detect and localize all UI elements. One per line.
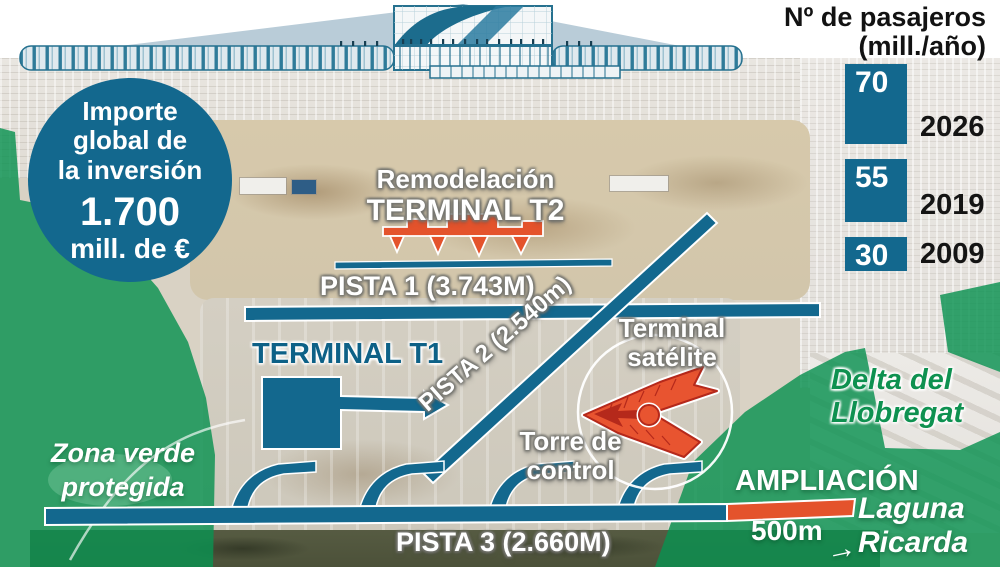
tower-label-line1: Torre de (493, 427, 648, 456)
delta-llobregat-label: Delta del Llobregat (831, 364, 963, 431)
scale-label: 500m (751, 516, 823, 547)
runway-3-bar (45, 504, 727, 525)
green-zone-label: Zona verde protegida (28, 437, 218, 505)
terminal-t2-label: Remodelación TERMINAL T2 (358, 165, 573, 227)
passenger-bar: 55 (845, 159, 907, 222)
tower-label-line2: control (493, 456, 648, 485)
laguna-ricarda-label: Laguna Ricarda (858, 492, 968, 560)
bar-year-label: 2026 (920, 115, 985, 140)
t2-label-line2: TERMINAL T2 (358, 194, 573, 227)
passenger-bar-row: 302009 (845, 237, 997, 271)
runway-3-label: PISTA 3 (2.660M) (396, 528, 611, 558)
passenger-bar-chart: 702026552019302009 (845, 64, 997, 286)
basement-block (430, 66, 620, 78)
green-zone-line2: protegida (28, 471, 218, 505)
terminal-t2-arrow (430, 236, 446, 254)
badge-amount: 1.700 (80, 192, 180, 232)
satellite-hub-dot (639, 405, 659, 425)
terminal-cross-section-illustration (18, 0, 746, 80)
passenger-bar: 70 (845, 64, 907, 144)
taxiway-wave (232, 461, 316, 507)
laguna-line1: Laguna (858, 492, 968, 526)
mezzanine-floor (394, 44, 552, 47)
bar-value-label: 30 (855, 239, 888, 271)
terminal-t2-arrow (390, 236, 404, 252)
delta-line2: Llobregat (831, 397, 963, 430)
satellite-terminal-label: Terminal satélite (602, 314, 742, 371)
terminal-t2-arrow (512, 236, 530, 254)
airport-expansion-infographic: Importe global de la inversión 1.700 mil… (0, 0, 1000, 567)
badge-title-line: la inversión (58, 156, 203, 186)
chart-title-line2: (mill./año) (784, 32, 986, 61)
west-wing-facade (20, 46, 394, 70)
delta-line1: Delta del (831, 364, 963, 397)
chart-title-line1: Nº de pasajeros (784, 3, 986, 32)
bar-value-label: 70 (855, 66, 888, 99)
bar-year-label: 2009 (920, 242, 985, 267)
runway-1-label: PISTA 1 (3.743M) (320, 272, 535, 302)
chart-title: Nº de pasajeros (mill./año) (784, 3, 986, 60)
badge-title-line: Importe (82, 97, 177, 127)
taxiway-wave (360, 461, 444, 507)
control-tower-label: Torre de control (493, 427, 648, 484)
bar-value-label: 55 (855, 161, 888, 194)
badge-title-line: global de (73, 126, 187, 156)
passenger-bar-row: 552019 (845, 159, 997, 222)
terminal-t1-label: TERMINAL T1 (252, 339, 443, 371)
satellite-label-line1: Terminal (602, 314, 742, 343)
passenger-bar-row: 702026 (845, 64, 997, 144)
investment-badge: Importe global de la inversión 1.700 mil… (28, 78, 232, 282)
bar-year-label: 2019 (920, 193, 985, 218)
passenger-bar: 30 (845, 237, 907, 271)
terminal-t2-arrow (470, 236, 488, 256)
satellite-label-line2: satélite (602, 343, 742, 372)
t2-label-line1: Remodelación (358, 165, 573, 194)
green-zone-line1: Zona verde (28, 437, 218, 471)
badge-unit: mill. de € (70, 235, 190, 263)
green-zone-east-edge (940, 282, 1000, 372)
laguna-line2: Ricarda (858, 526, 968, 560)
